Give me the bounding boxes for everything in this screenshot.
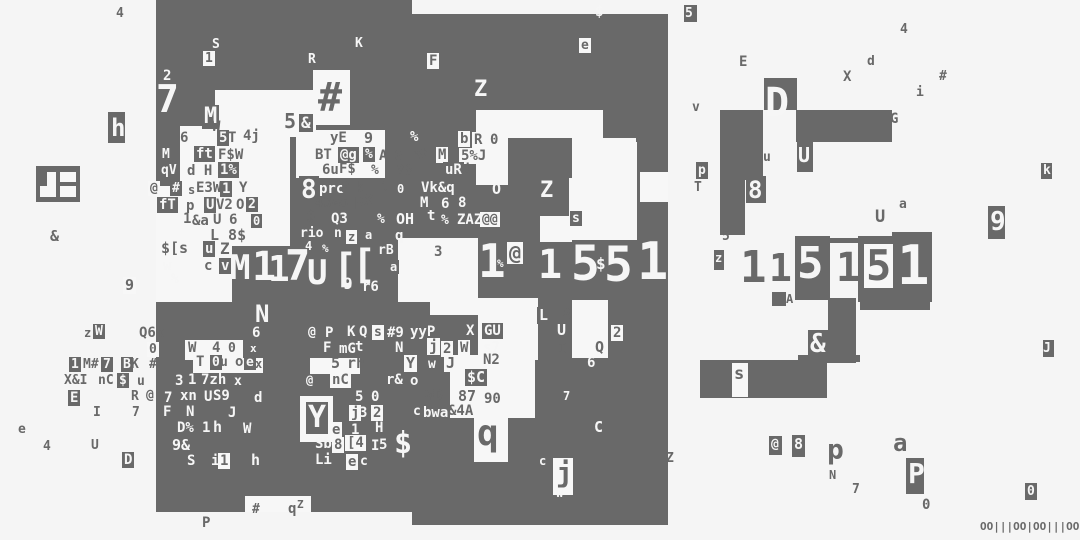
glyph: 4 [212,341,220,355]
glyph: $C [465,369,487,386]
glyph: u [203,241,215,257]
glyph: Y [306,402,328,434]
glyph: % [371,164,379,177]
glyph: 5 [331,356,340,371]
glyph: 9& [172,438,190,453]
glyph: 1 [220,181,232,197]
glyph: yE [330,131,347,145]
glyph: 0 [147,342,159,357]
glyph: a [899,198,907,211]
glyph: 6 [394,149,402,163]
glyph: 6 [180,131,188,145]
glyph: Z [297,499,304,510]
glyph: 1 [188,373,196,387]
glyph: J [1043,342,1051,355]
glyph: 8 [748,178,762,202]
glyph: & [50,229,59,244]
glyph: % [497,258,504,269]
glyph: v [692,101,700,114]
glyph: G [890,112,898,126]
glyph: h [111,116,125,140]
glyph: 1 [740,246,767,290]
glyph: 1 [769,249,792,287]
glyph: D [379,181,387,195]
glyph: @ [507,242,523,264]
glyph: 1 [183,212,191,226]
glyph: a [363,228,374,242]
glyph: % [171,273,179,286]
glyph: V2 [216,198,233,212]
glyph: T [694,181,702,194]
glyph: & [299,114,313,132]
glyph: 4 [116,7,124,20]
glyph: U [875,209,885,226]
glyph: U [204,197,216,213]
glyph: c [539,455,546,467]
glyph: 3 [359,406,367,420]
glyph: I [93,406,101,419]
glyph: s [188,184,195,196]
glyph: 7 [132,406,140,419]
glyph: Q [357,324,369,340]
glyph: @ [771,438,779,451]
glyph: P [325,326,333,340]
glyph: OH [396,212,414,227]
glyph: @ [148,181,160,196]
glyph: @ [146,389,154,402]
glyph: D [122,452,134,468]
glyph: Z [474,79,487,101]
glyph: z [84,327,91,339]
glyph: $ [306,209,316,226]
glyph: bwa [421,405,450,421]
glyph: # [149,358,157,371]
glyph: 5 [355,390,363,404]
glyph: x [234,375,242,388]
glyph: 0 [395,182,406,196]
glyph: s [734,366,744,383]
glyph: X [843,70,851,84]
glyph: S [212,38,220,51]
glyph: S [187,454,195,468]
glyph: E [68,390,80,406]
glyph: 6 [252,326,260,340]
glyph: 90 [484,392,501,406]
glyph: 1 [538,245,562,285]
glyph: # [170,181,182,196]
glyph: Q [593,339,606,356]
glyph: 4j [243,129,260,143]
glyph: e [346,454,358,470]
glyph: H [375,421,383,435]
glyph: fT [157,197,178,213]
glyph: 7 [156,80,179,118]
glyph: c [202,258,214,274]
glyph: x [250,343,257,354]
glyph: R [131,390,139,403]
glyph: F$ [339,162,356,176]
glyph: e [579,38,591,53]
glyph: BT [315,148,332,162]
glyph: rh [347,356,365,371]
glyph: 9 [362,130,375,147]
glyph: U [798,145,810,165]
glyph: N [829,469,836,481]
glyph: Z [540,180,553,202]
glyph: w [428,358,436,371]
glyph: F$W [218,148,243,162]
glyph: % [441,214,449,227]
glyph: 5 [722,230,730,243]
glyph: s [570,211,582,226]
glyph: I [558,342,566,356]
glyph: U [91,439,99,452]
glyph: Z [666,452,674,465]
glyph: D [765,83,789,123]
glyph: & [810,331,826,357]
glyph: Sb [315,437,332,451]
glyph: p [827,436,844,464]
glyph: E [739,55,747,69]
glyph: P [908,460,925,488]
glyph: J [444,355,457,372]
glyph: E3W [196,181,221,195]
glyph: 0 [371,390,379,404]
glyph: U [461,162,469,176]
glyph: W [458,340,470,356]
glyph: % [377,213,385,226]
glyph: o [410,374,418,388]
glyph: u [763,151,771,164]
glyph: 1 [218,453,230,469]
glyph: A [786,293,793,305]
glyph: o [235,355,243,369]
glyph: t [355,340,363,354]
glyph: P [202,516,210,530]
glyph: @ [306,325,318,340]
glyph: R [308,53,316,66]
glyph: h [249,452,262,469]
glyph: X [464,323,476,339]
glyph: 0 [922,498,930,512]
glyph: 7 [852,483,860,496]
glyph: 8 [458,196,466,210]
glyph: M [162,148,170,161]
glyph: ZAZ [457,213,482,227]
glyph: x [255,358,262,370]
glyph: WD [425,388,443,403]
glyph: @@ [480,212,500,227]
glyph: Q3 [329,211,350,227]
glyph: j [556,459,573,487]
glyph: h [211,419,224,436]
glyph: S9 [213,389,230,403]
glyph: F [323,341,331,355]
glyph: 5 [685,7,693,20]
glyph: 1 [836,248,860,288]
glyph: 6 [441,197,449,211]
glyph: t [427,209,435,223]
glyph: #9 [387,326,404,340]
glyph: &4A [448,404,473,418]
glyph: c [360,455,368,468]
glyph: A [379,149,387,163]
glyph: 1% [218,162,239,178]
glyph: d [867,55,875,68]
glyph: 4 [43,440,51,453]
glyph: 5 [797,242,824,286]
glyph: r& [386,373,403,387]
glyph: 1 [637,236,668,288]
glyph: a [893,431,907,455]
glyph: 5 [284,111,296,131]
glyph: ft [194,146,215,162]
glyph: 2 [611,325,623,341]
glyph: nC [98,374,114,387]
glyph: k [1043,164,1051,177]
glyph: # [252,503,260,516]
glyph: u [220,356,228,369]
glyph: Q6k [139,326,164,340]
glyph: T [196,355,204,369]
glyph: F [427,53,439,69]
glyph: 2 [371,405,383,421]
glyph: d [252,390,264,406]
glyph: 3 [434,245,442,259]
glyph: K [355,37,363,50]
glitch-canvas: 4h&9zWQ6k01M#7BK#X&InC$uER@I7e4UDS1KR27#… [0,0,1080,540]
glyph: K [347,325,355,339]
glyph: U [213,213,221,227]
glyph: p [698,164,706,177]
glyph: 87 [458,389,476,404]
glyph: M [230,251,250,285]
glyph: 2 [246,197,258,212]
glyph: s [372,325,384,340]
glyph: W [188,341,196,355]
glyph: 5 [604,241,633,289]
glyph: 6 [229,213,237,227]
glyph-layer: 4h&9zWQ6k01M#7BK#X&InC$uER@I7e4UDS1KR27#… [0,0,1080,540]
glyph: 9 [990,209,1006,235]
glyph: 4 [305,240,312,252]
glyph: pX [354,193,373,209]
glyph: T [228,131,236,145]
glyph: K [131,358,139,371]
glyph: N [395,341,403,355]
barcode: OO|||OO|OO|||OO|OO||O|O| [980,521,1080,532]
glyph: 6u [322,163,339,177]
glyph: xn [180,389,197,403]
glyph: O [236,198,244,212]
glyph: 0 [251,214,262,228]
glyph: @ [306,374,313,386]
glyph: 3 [173,373,185,389]
glyph: 9 [123,277,136,294]
glyph: w [163,259,171,273]
glyph: W [93,324,105,339]
glyph: j [427,338,440,355]
glyph: 0 [490,133,498,147]
glyph: i [916,86,924,99]
glyph: 7 [563,390,570,402]
glyph: e [18,423,26,436]
glyph: C [594,420,603,435]
glyph: X&I [64,374,87,387]
glyph: U [555,322,568,339]
glyph: U [307,256,327,290]
glyph: a [388,260,399,274]
glyph: D% [177,421,194,435]
glyph: 1 [69,357,81,372]
glyph: Y [239,181,247,195]
glyph: 7 [101,357,113,372]
glyph: u [137,375,145,388]
glyph: 43wo [315,196,349,210]
glyph: N [186,405,194,419]
glyph: n [334,227,342,240]
glyph: 7zh [201,373,226,387]
glyph: q [288,502,296,516]
glyph: z [715,252,722,264]
glyph: % [363,147,375,162]
glyph: GU [482,323,503,339]
glyph: q [395,229,403,243]
glyph: 5 [864,244,893,288]
glyph: 1 [897,239,930,293]
glyph: # [939,70,947,83]
glyph: rB [378,244,394,257]
glyph: q [477,416,499,452]
glyph: % [410,130,418,144]
glyph: 5 [379,438,387,452]
glyph: 8 [563,308,571,322]
glyph: qV [159,163,179,178]
glyph: $[s [161,241,188,256]
glyph: 8 [332,437,344,453]
glyph: L [537,307,550,324]
glyph: 8 [794,437,803,452]
glyph: # [318,78,342,118]
glyph: $ [117,373,129,388]
glyph: 38 [396,164,413,178]
glyph: 1 [203,51,215,66]
glyph: W [243,422,251,436]
glyph: d H [187,164,212,178]
glyph: r6 [362,280,379,294]
glyph: $ [595,5,603,19]
glyph: M [436,147,448,163]
glyph: R [472,132,484,148]
glyph: N [255,302,269,326]
glyph: 6 [587,356,595,370]
glyph: N2 [483,353,500,367]
glyph: w [556,487,563,499]
glyph: b [458,131,470,147]
glyph: 0 [1027,485,1035,498]
glyph: 1 [202,421,210,435]
glyph: M# [83,358,99,371]
glyph: nC [330,372,351,388]
glyph: Vk&q [419,180,457,196]
glyph: [4 [345,435,366,451]
glyph: J [228,406,236,420]
glyph: Li [315,453,332,467]
glyph: &a [192,214,209,228]
glyph: $ [394,429,412,459]
glyph: 4 [900,23,908,36]
glyph: P [341,181,349,195]
glyph: F [163,405,171,419]
glyph: e [330,422,342,438]
glyph: O [492,182,501,197]
glyph: m# [410,148,427,162]
glyph: Y [404,355,417,372]
